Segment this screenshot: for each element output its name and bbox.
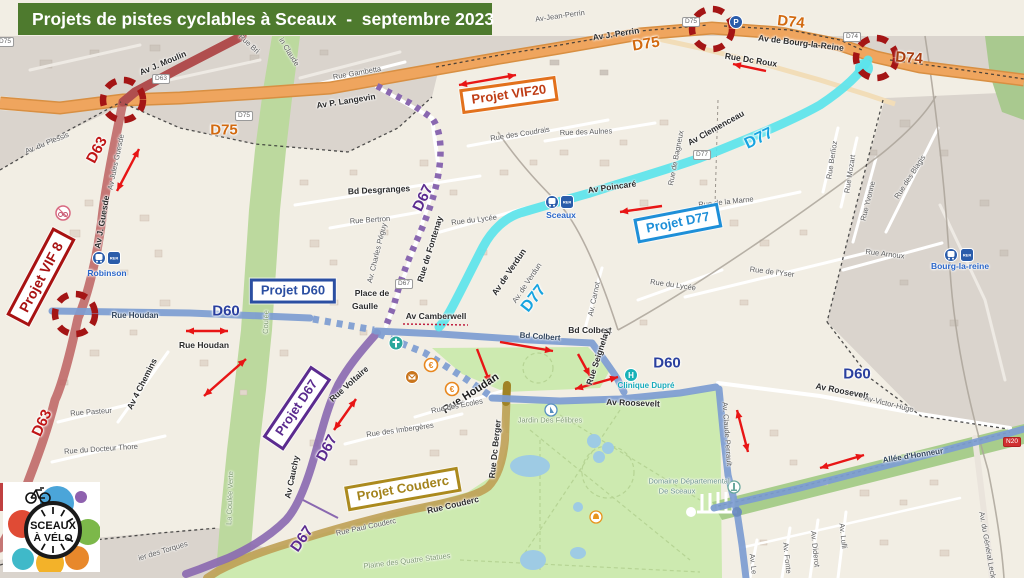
train-icon: [945, 249, 958, 262]
svg-text:€: €: [450, 384, 455, 394]
sceaux-a-velo-logo: SCEAUX À VÉLO: [3, 482, 100, 572]
rer-icon: RER: [561, 196, 574, 209]
svg-text:P: P: [733, 18, 739, 27]
rer-icon: RER: [961, 249, 974, 262]
train-icon: [546, 196, 559, 209]
svg-text:RER: RER: [563, 200, 572, 205]
page-title: Projets de pistes cyclables à Sceaux - s…: [18, 3, 492, 35]
bell-icon: [590, 511, 602, 523]
svg-text:H: H: [628, 371, 634, 380]
sail-icon: [545, 404, 557, 416]
euro-icon: €: [425, 359, 438, 372]
logo-wheel: SCEAUX À VÉLO: [26, 503, 80, 557]
logo-text-bottom: À VÉLO: [33, 531, 72, 544]
svg-text:€: €: [429, 360, 434, 370]
monument-icon: [728, 481, 740, 493]
svg-text:RER: RER: [963, 253, 972, 258]
rer-icon: RER: [108, 252, 121, 265]
nobike-icon: [56, 206, 70, 220]
euro-icon: €: [446, 383, 459, 396]
logo-text-top: SCEAUX: [30, 520, 77, 532]
post-icon: [406, 371, 419, 384]
base-map: RERRERRER€€HP: [0, 0, 1024, 578]
hospital-icon: H: [625, 369, 638, 382]
church-icon: [389, 336, 403, 350]
svg-text:RER: RER: [110, 256, 119, 261]
train-icon: [93, 252, 106, 265]
parking-icon: P: [730, 16, 743, 29]
map-canvas: RERRERRER€€HP Av J. MoulinRue Briin Clau…: [0, 0, 1024, 578]
